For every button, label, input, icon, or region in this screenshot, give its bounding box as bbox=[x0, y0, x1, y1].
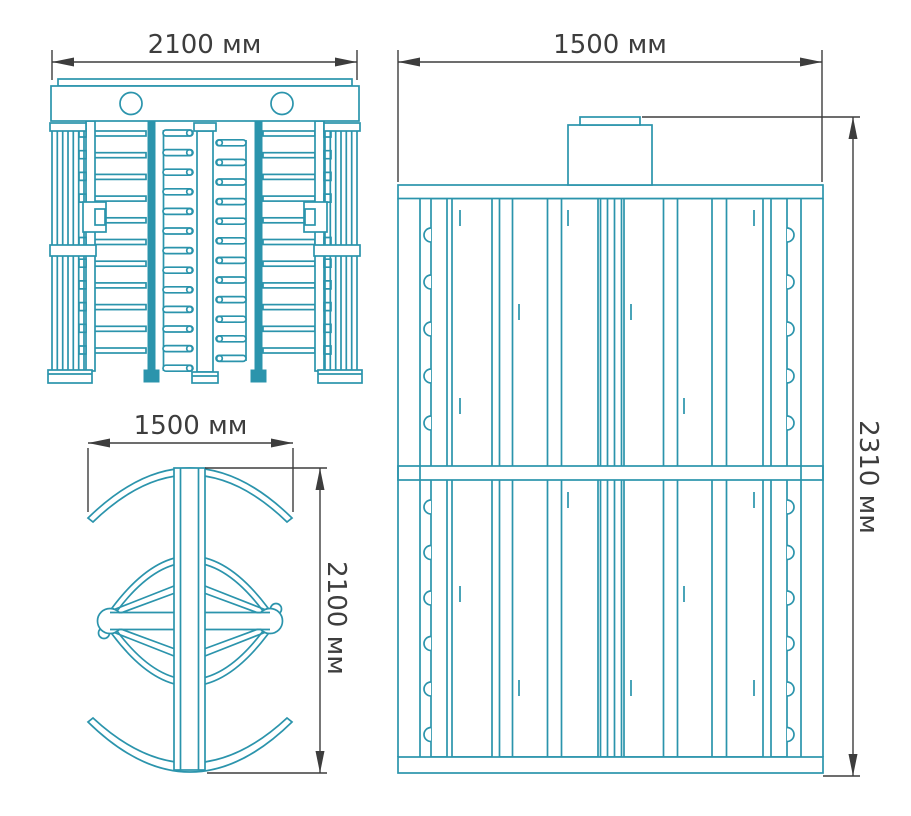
turnstile-technical-drawing: 2100 мм bbox=[0, 0, 911, 816]
arrowhead-left bbox=[52, 58, 74, 67]
arrowhead-right bbox=[271, 439, 293, 448]
arrowhead-left bbox=[398, 58, 420, 67]
front-rotor-comb-left bbox=[163, 130, 193, 371]
front-left-stem bbox=[148, 121, 155, 371]
front-left-gate-bars bbox=[94, 131, 146, 353]
side-left-knuckles bbox=[424, 228, 431, 742]
arrowhead-right bbox=[800, 58, 822, 67]
arrowhead-down bbox=[316, 751, 325, 773]
side-height-label: 2310 мм bbox=[853, 420, 883, 534]
arrowhead-up bbox=[849, 117, 858, 139]
arrowhead-right bbox=[335, 58, 357, 67]
front-cabinet bbox=[48, 79, 362, 383]
plan-depth-label: 2100 мм bbox=[321, 561, 351, 675]
front-center-post bbox=[192, 123, 218, 383]
side-grid bbox=[398, 199, 823, 758]
plan-center-column bbox=[174, 468, 205, 770]
side-mid-rail bbox=[398, 466, 823, 480]
front-right-latch bbox=[304, 202, 327, 232]
side-view: 1500 мм bbox=[398, 30, 883, 776]
arrowhead-up bbox=[316, 468, 325, 490]
arrowhead-left bbox=[88, 439, 110, 448]
side-control-box bbox=[568, 117, 652, 185]
front-right-stem bbox=[255, 121, 262, 371]
plan-view: 1500 мм 2100 мм bbox=[88, 411, 351, 773]
side-right-knuckles bbox=[787, 228, 794, 742]
front-left-latch bbox=[83, 202, 106, 232]
side-width-label: 1500 мм bbox=[553, 30, 667, 60]
front-width-dimension: 2100 мм bbox=[52, 30, 357, 80]
front-view: 2100 мм bbox=[48, 30, 362, 383]
side-header-bar bbox=[398, 185, 823, 199]
plan-width-label: 1500 мм bbox=[134, 411, 248, 441]
arrowhead-down bbox=[849, 754, 858, 776]
front-width-label: 2100 мм bbox=[148, 30, 262, 60]
front-indicator-left bbox=[120, 93, 142, 115]
front-header bbox=[51, 79, 359, 121]
front-rotor-comb-right bbox=[216, 140, 246, 362]
front-right-gate-bars bbox=[263, 131, 315, 353]
side-base-bar bbox=[398, 757, 823, 773]
front-indicator-right bbox=[271, 93, 293, 115]
